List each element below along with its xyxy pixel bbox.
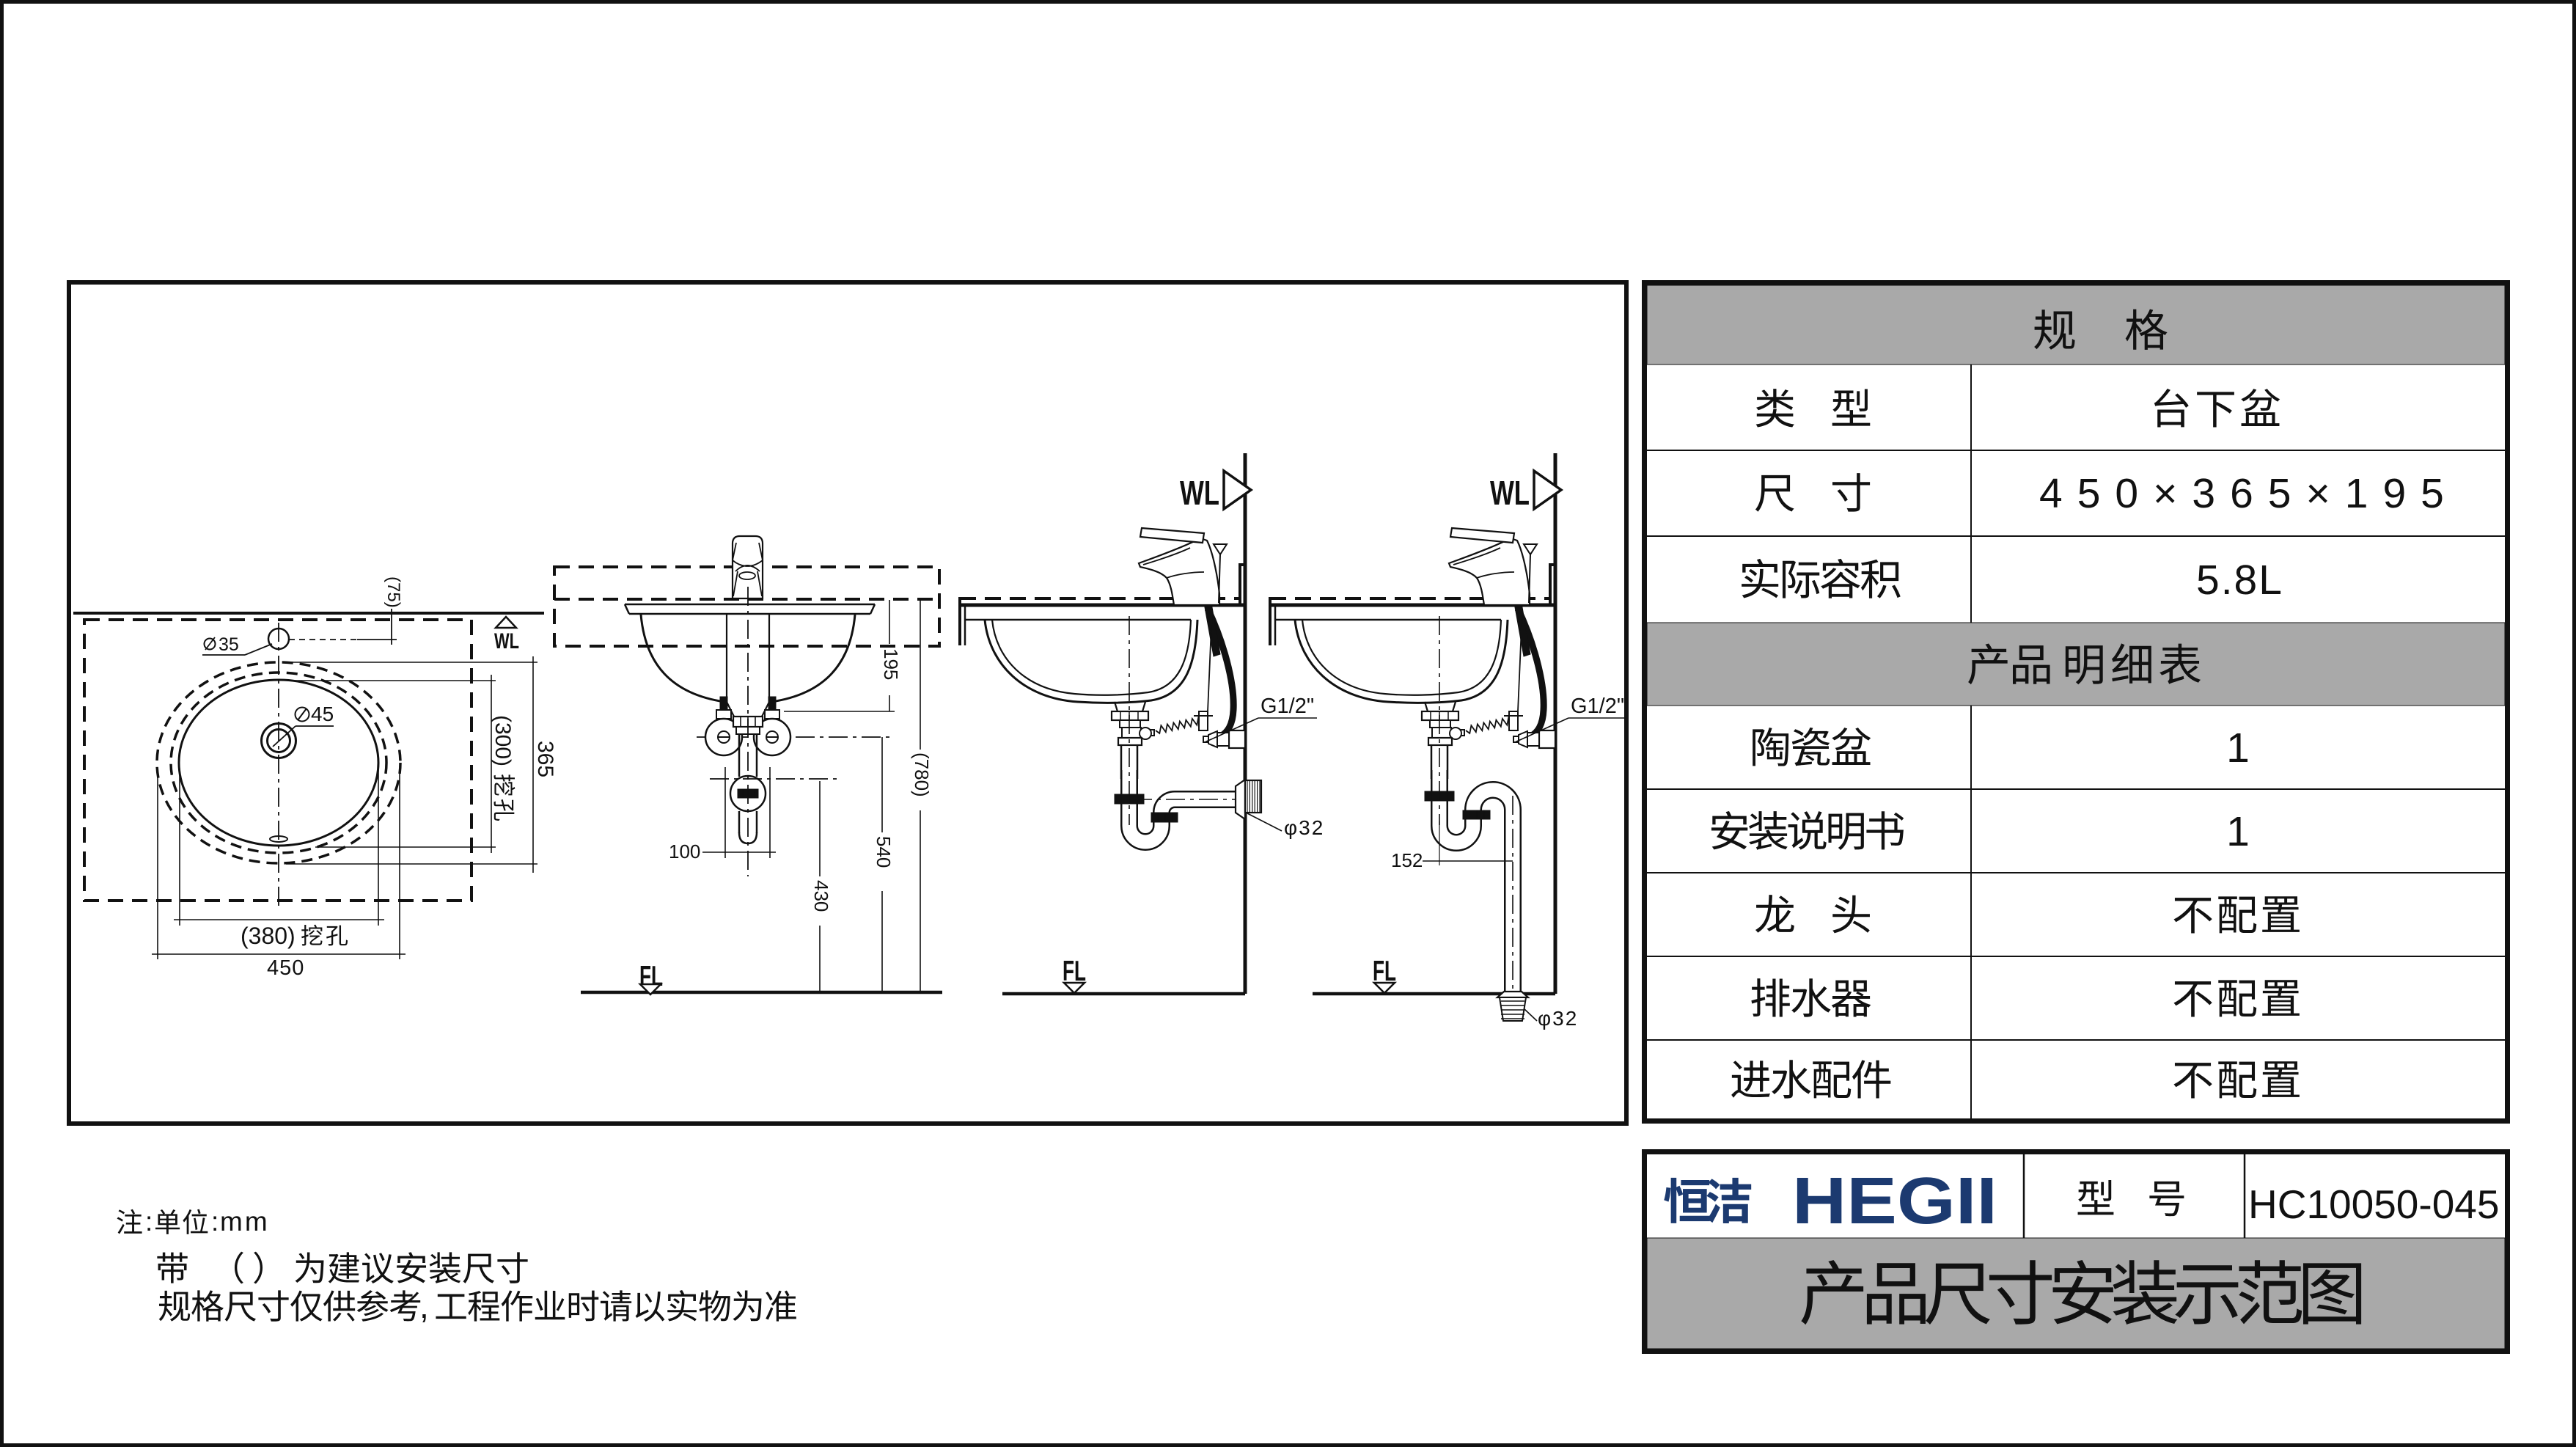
svg-text:365: 365: [533, 741, 557, 777]
svg-text:45: 45: [311, 703, 334, 725]
svg-text:HEGII: HEGII: [1792, 1165, 1997, 1238]
svg-text:WL: WL: [1490, 474, 1530, 512]
svg-text:WL: WL: [494, 629, 519, 653]
svg-text:5.8L: 5.8L: [2196, 557, 2283, 604]
svg-text:195: 195: [880, 648, 902, 680]
svg-text:(380): (380): [241, 923, 296, 949]
svg-text:35: 35: [219, 634, 239, 655]
svg-text:540: 540: [873, 836, 895, 868]
svg-text:450×365×195: 450×365×195: [2039, 470, 2459, 517]
svg-text:(780): (780): [911, 752, 933, 797]
svg-text:φ32: φ32: [1284, 816, 1324, 839]
svg-text:,: ,: [419, 1287, 429, 1325]
svg-text:(300): (300): [491, 715, 515, 766]
svg-text:G1/2": G1/2": [1571, 695, 1624, 718]
svg-text:(75): (75): [384, 576, 403, 608]
svg-text:430: 430: [810, 880, 832, 912]
svg-text:450: 450: [267, 956, 304, 980]
svg-text:WL: WL: [1180, 474, 1219, 512]
svg-text:100: 100: [669, 840, 700, 862]
svg-text:G1/2": G1/2": [1261, 695, 1314, 718]
svg-text:1: 1: [2226, 808, 2250, 855]
svg-text:1: 1: [2226, 725, 2250, 772]
svg-text:HC10050-045: HC10050-045: [2248, 1182, 2499, 1227]
svg-text:152: 152: [1391, 849, 1423, 871]
svg-text::: :: [211, 1206, 219, 1237]
svg-text::: :: [145, 1206, 153, 1237]
svg-text:mm: mm: [220, 1206, 270, 1237]
svg-text:φ32: φ32: [1538, 1007, 1578, 1030]
